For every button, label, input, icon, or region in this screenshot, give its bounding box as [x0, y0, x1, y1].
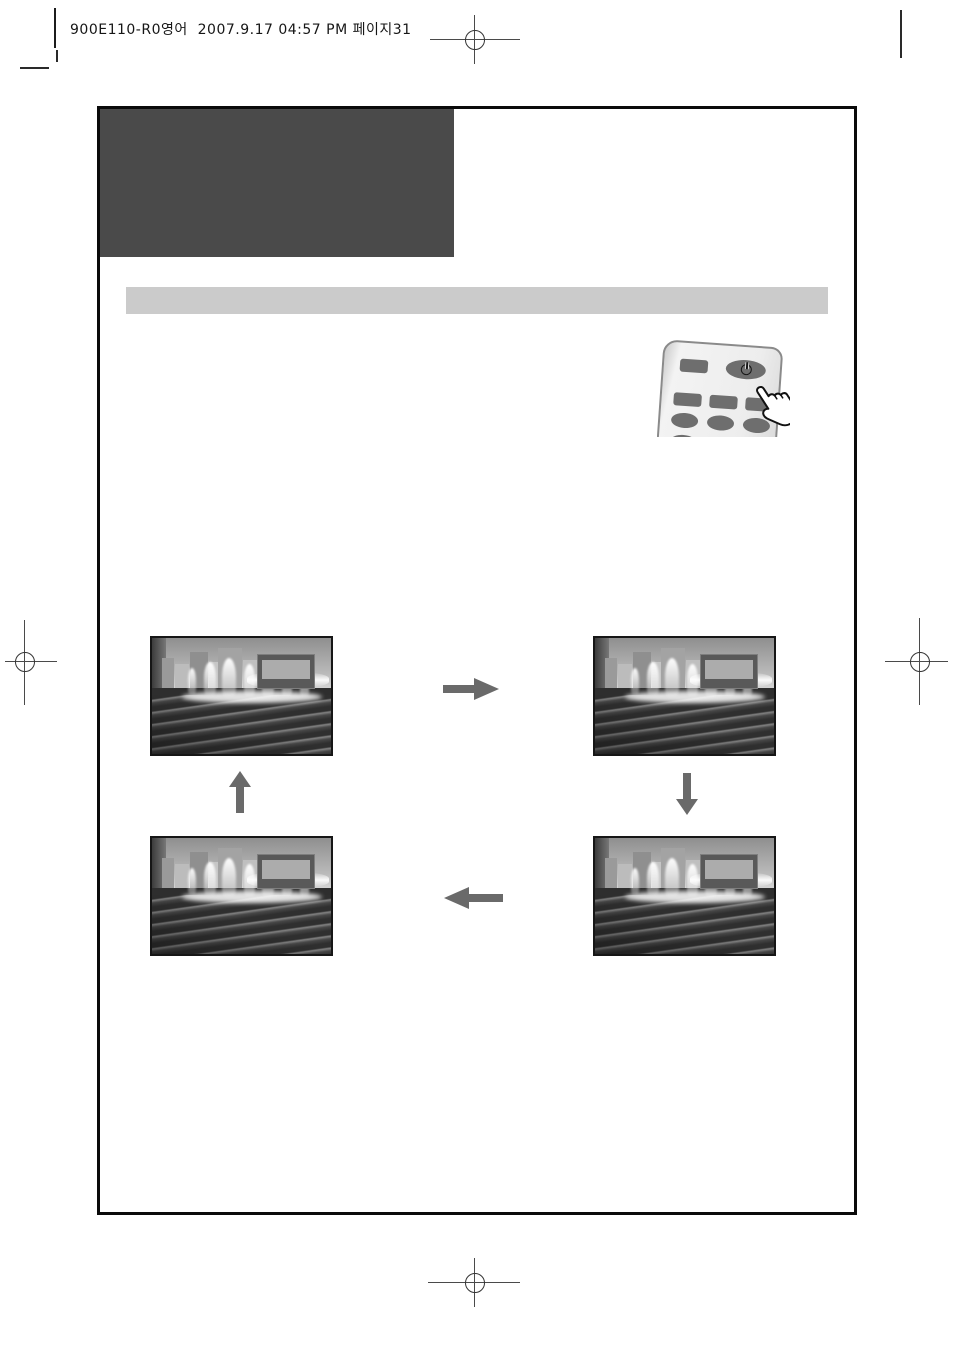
remote-button — [709, 395, 738, 410]
remote-button — [680, 359, 709, 374]
osd-menu-inner — [262, 660, 310, 679]
photo-fountain-spray — [244, 864, 255, 896]
photo-fountain-spray — [631, 668, 639, 694]
photo-building — [162, 658, 174, 692]
print-header-rule — [54, 8, 56, 48]
arrow-left-icon — [444, 887, 503, 909]
photo-fountain-spray — [204, 662, 216, 695]
arrow-up-icon — [229, 771, 251, 813]
osd-menu-overlay — [257, 654, 315, 689]
remote-button — [673, 392, 702, 407]
arrow-down-icon — [676, 773, 698, 815]
section-header-bar — [126, 287, 828, 314]
photo-fountain-spray — [244, 664, 255, 696]
print-header-text: 900E110-R0영어 2007.9.17 04:57 PM 페이지31 — [70, 19, 412, 39]
crop-mark-left — [20, 67, 49, 69]
fountain-plaza-photo — [152, 838, 331, 954]
photo-fountain-spray — [687, 664, 698, 696]
photo-fountain-spray — [204, 862, 216, 895]
photo-fountain-spray — [631, 868, 639, 894]
osd-menu-inner — [262, 860, 310, 879]
osd-menu-inner — [705, 860, 753, 879]
photo-water — [595, 695, 774, 754]
photo-fountain-spray — [647, 862, 659, 895]
photo-building — [605, 658, 617, 692]
screen-thumbnail-bottom-left — [150, 836, 333, 956]
photo-fountain-spray — [665, 858, 679, 896]
remote-button — [671, 412, 699, 429]
photo-building — [605, 858, 617, 892]
photo-fountain-spray — [665, 658, 679, 696]
fountain-plaza-photo — [595, 838, 774, 954]
photo-fountain-spray — [188, 868, 196, 894]
photo-water — [152, 695, 331, 754]
screen-thumbnail-bottom-right — [593, 836, 776, 956]
photo-building — [162, 858, 174, 892]
remote-button — [669, 434, 697, 437]
screen-thumbnail-top-right — [593, 636, 776, 756]
scanned-manual-page: { "document": { "print_header": "900E110… — [0, 0, 954, 1350]
osd-menu-overlay — [700, 654, 758, 689]
photo-fountain-spray — [687, 864, 698, 896]
photo-fountain-spray — [647, 662, 659, 695]
title-block — [100, 109, 454, 257]
crop-mark-top-tick — [56, 50, 58, 62]
remote-button — [707, 415, 735, 432]
screen-thumbnail-top-left — [150, 636, 333, 756]
remote-control-illustration — [657, 336, 790, 437]
power-icon — [740, 364, 752, 376]
photo-fountain-spray — [222, 658, 236, 696]
osd-menu-overlay — [257, 854, 315, 889]
photo-water — [152, 895, 331, 954]
photo-fountain-spray — [188, 668, 196, 694]
fountain-plaza-photo — [152, 638, 331, 754]
arrow-right-icon — [443, 678, 499, 700]
osd-menu-inner — [705, 660, 753, 679]
photo-fountain-spray — [222, 858, 236, 896]
power-button — [725, 359, 766, 381]
fountain-plaza-photo — [595, 638, 774, 754]
osd-menu-overlay — [700, 854, 758, 889]
photo-water — [595, 895, 774, 954]
crop-mark-right — [900, 10, 902, 58]
